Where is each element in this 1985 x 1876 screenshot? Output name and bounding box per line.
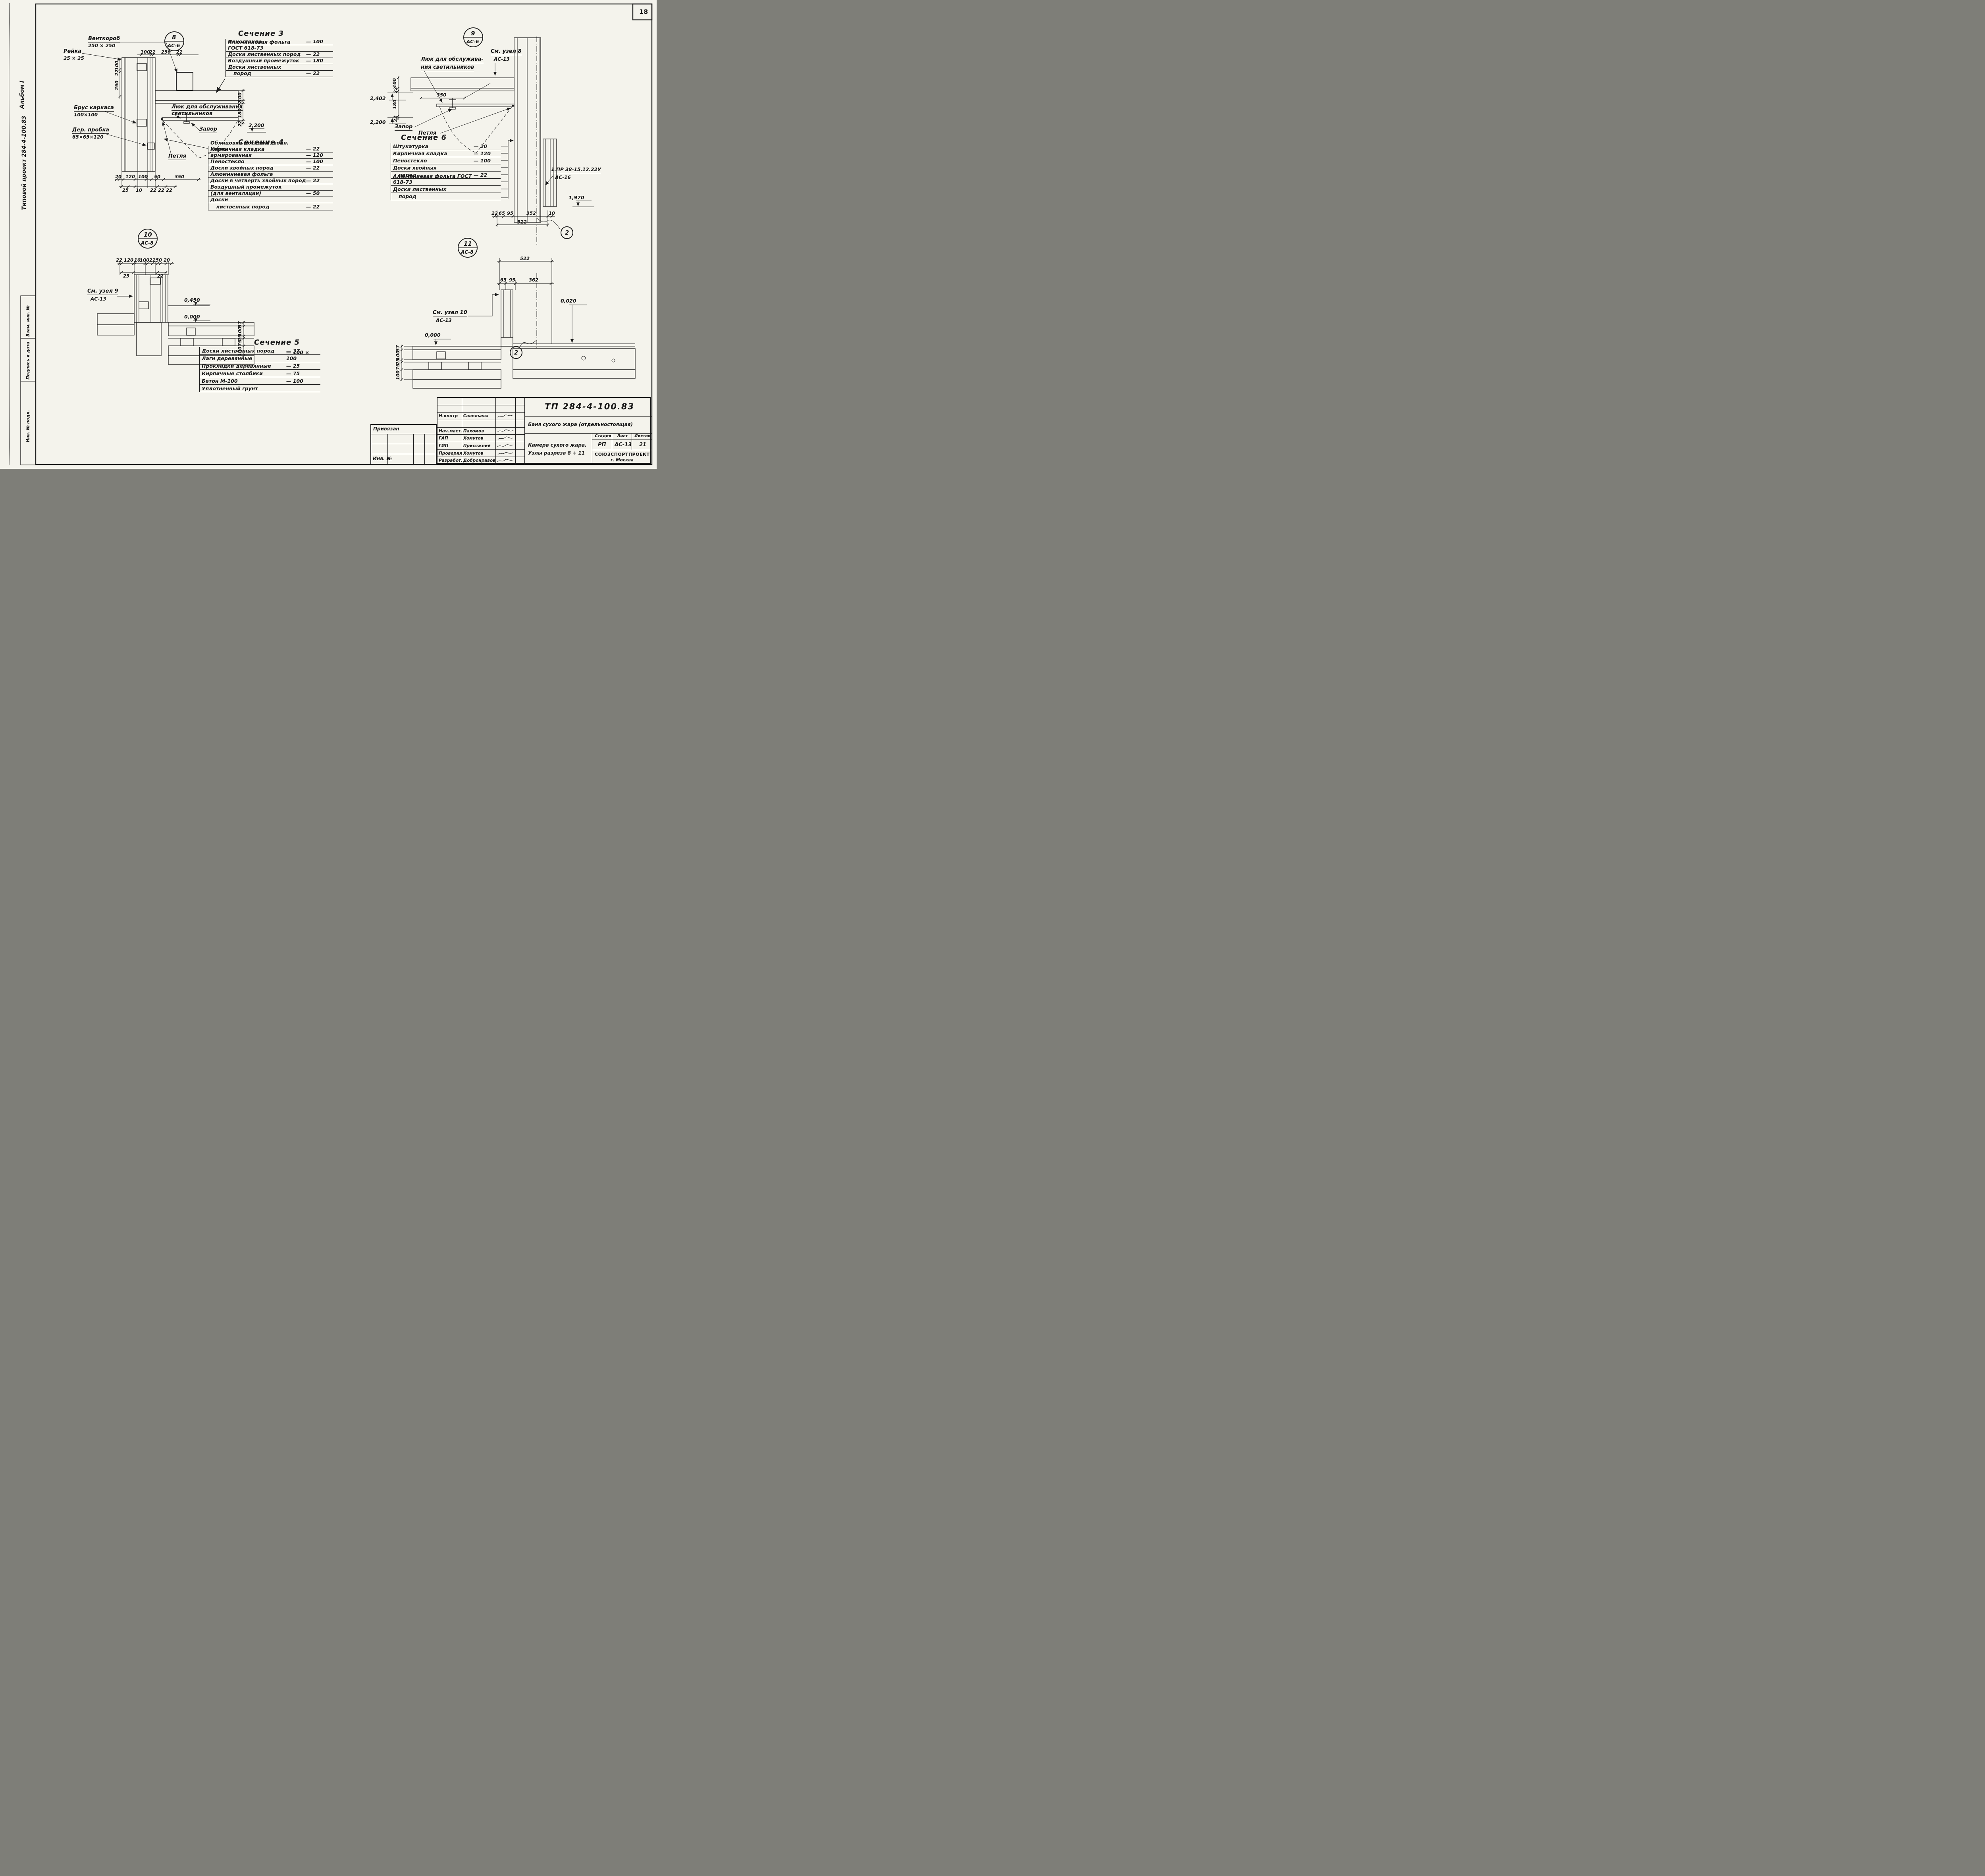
role-label: ГАП bbox=[437, 435, 462, 442]
material-name: Алюминиевая фольга ГОСТ 618-73 bbox=[228, 39, 306, 51]
table-row: Кирпичные столбики— 75 bbox=[200, 370, 320, 377]
see-node-sheet: АС-13 bbox=[436, 318, 452, 323]
material-value: — 120 bbox=[474, 150, 500, 156]
material-value: — 25 bbox=[286, 363, 320, 369]
dim: 352 bbox=[526, 210, 536, 216]
material-name: пород bbox=[393, 193, 474, 199]
dim: 250 bbox=[114, 81, 119, 90]
material-name: Доски bbox=[210, 197, 306, 202]
table-row: Бетон М-100— 100 bbox=[200, 377, 320, 385]
dim: 100 bbox=[114, 61, 119, 70]
role-name: Пахомов bbox=[462, 428, 496, 435]
elevation-mark: 0,450 bbox=[184, 297, 200, 303]
material-value: — 100 bbox=[306, 158, 332, 164]
dim: 22 bbox=[116, 257, 122, 263]
page-number: 18 bbox=[639, 8, 648, 15]
material-name: Воздушный промежуток bbox=[228, 58, 306, 64]
table-row: Доски лиственных bbox=[391, 186, 501, 193]
signature bbox=[497, 414, 514, 418]
table-row: (для вентиляции)— 50 bbox=[208, 191, 333, 197]
table-row: Доски лиственных пород— 22 bbox=[226, 52, 333, 58]
latch-label: Запор bbox=[395, 124, 412, 131]
margin-album-label: Альбом I bbox=[19, 73, 25, 109]
dim: 65 bbox=[499, 210, 505, 216]
signature bbox=[497, 458, 514, 463]
hatch-label-line2: ния светильников bbox=[421, 64, 474, 71]
see-node-sheet: АС-13 bbox=[91, 296, 106, 302]
material-name: лиственных пород bbox=[210, 204, 306, 210]
dim: 120 bbox=[125, 174, 135, 179]
table-row: Алюминиевая фольга ГОСТ 618-73 bbox=[391, 179, 501, 186]
dim: 100 bbox=[138, 174, 148, 179]
hinge-label: Петля bbox=[168, 153, 186, 160]
dim: 22 bbox=[237, 120, 243, 127]
table-row: Прокладки деревянные— 25 bbox=[200, 362, 320, 370]
title-block: Н.контрСавельева Нач.маст.Пахомов ГАПХом… bbox=[437, 397, 651, 464]
duct-size: 250 × 250 bbox=[88, 43, 116, 48]
hatch-label-line2: светильников bbox=[172, 111, 212, 117]
attached-label: Привязан bbox=[373, 426, 399, 432]
material-name: пород bbox=[228, 70, 306, 76]
hatch-label-line1: Люк для обслуживания bbox=[172, 104, 243, 111]
plug-size: 65×65×120 bbox=[72, 134, 104, 140]
object-title: Баня сухого жара (отдельностоящая) bbox=[528, 422, 633, 427]
material-name: Доски хвойных bbox=[393, 165, 474, 171]
ref-doc-label: 1.ПР 38-15.12.22У bbox=[551, 167, 601, 173]
elevation-mark: 2,402 bbox=[370, 95, 386, 101]
dim: 250 bbox=[161, 49, 171, 55]
dim: 50 bbox=[156, 257, 162, 263]
signature bbox=[497, 451, 514, 456]
signature bbox=[497, 429, 514, 434]
material-value: — 22 bbox=[306, 165, 332, 171]
dim: 180 bbox=[237, 108, 243, 118]
dim: 95 bbox=[509, 277, 515, 283]
section3-title: Сечение 3 bbox=[238, 29, 284, 38]
dim: 22 bbox=[158, 187, 164, 193]
table-row: Алюминиевая фольга ГОСТ 618-73 bbox=[226, 45, 333, 52]
table-row: Доски хвойных пород— 22 bbox=[208, 165, 333, 172]
table-row: Воздушный промежуток bbox=[208, 184, 333, 191]
elevation-mark: 2,200 bbox=[249, 122, 264, 128]
dim: 100 bbox=[141, 49, 150, 55]
signature bbox=[497, 436, 514, 441]
material-name: Прокладки деревянные bbox=[202, 363, 286, 369]
node9-bubble-sheet: АС-6 bbox=[466, 39, 479, 44]
dim: 22 bbox=[149, 257, 156, 263]
organization-city: г. Москва bbox=[611, 458, 634, 463]
material-value: — 22 bbox=[306, 70, 332, 76]
material-name: Доски в четверть хвойных пород bbox=[210, 177, 306, 183]
material-name: Уплотненный грунт bbox=[202, 386, 286, 391]
dim: 22 bbox=[393, 87, 398, 93]
dim: 22 bbox=[166, 187, 172, 193]
material-name: Пеностекло bbox=[210, 158, 306, 164]
beam-size: 100×100 bbox=[74, 112, 98, 118]
dim: 50 bbox=[154, 174, 160, 179]
material-value: — 22 bbox=[306, 177, 332, 183]
section3-table: Пеностекло— 100 Алюминиевая фольга ГОСТ … bbox=[225, 39, 333, 77]
role-name: Хомутов bbox=[462, 450, 496, 457]
elevation-mark: 0,000 bbox=[425, 332, 441, 338]
dim: 75 bbox=[395, 364, 401, 370]
section4-table: Облицовка досками хвойн. пород— 22 Кирпи… bbox=[208, 146, 333, 210]
role-name: Присяжний bbox=[462, 442, 496, 449]
role-label: Н.контр bbox=[437, 413, 462, 420]
see-node-label: См. узел 9 bbox=[87, 288, 118, 295]
table-row: Штукатурка— 20 bbox=[391, 143, 501, 150]
dim: 25 bbox=[123, 273, 129, 279]
stage-header: Стадия bbox=[595, 434, 611, 438]
hatch-label-line1: Люк для обслужива- bbox=[421, 56, 484, 63]
beam-label: Брус каркаса bbox=[74, 105, 114, 112]
dim: 100 bbox=[395, 370, 401, 380]
dim: 350 bbox=[437, 92, 446, 98]
margin-project-label: Типовой проект 284-4-100.83 bbox=[21, 111, 27, 210]
table-row: Уплотненный грунт bbox=[200, 385, 320, 392]
dim: 100 bbox=[392, 78, 397, 88]
node11-bubble-number: 11 bbox=[464, 240, 472, 247]
attachment-stamp: Привязан Инв. № bbox=[370, 424, 437, 465]
title-block-row: Разработ.Добронравова bbox=[437, 457, 524, 465]
dim: 362 bbox=[529, 277, 538, 283]
material-name: Штукатурка bbox=[393, 143, 474, 149]
title-block-row bbox=[437, 420, 524, 428]
table-row: Пеностекло— 100 bbox=[208, 159, 333, 165]
node9-bubble-number: 9 bbox=[471, 30, 475, 37]
dim: 22 bbox=[176, 49, 183, 55]
elevation-mark: 2,200 bbox=[370, 119, 386, 125]
dim: 75 bbox=[237, 340, 243, 346]
material-value: — 22 bbox=[306, 51, 332, 57]
role-name: Добронравова bbox=[462, 457, 496, 465]
axis-bubble-2: 2 bbox=[565, 229, 569, 236]
dim: 20 bbox=[115, 174, 121, 179]
dim: 22 bbox=[149, 49, 156, 55]
dim: 180 bbox=[392, 100, 397, 109]
dim: 10 bbox=[549, 210, 555, 216]
table-row: Доски в четверть хвойных пород— 22 bbox=[208, 178, 333, 184]
node8-bubble-number: 8 bbox=[172, 34, 176, 41]
see-node-label: См. узел 10 bbox=[433, 310, 467, 316]
material-name: Кирпичная кладка bbox=[393, 150, 474, 156]
material-name: Пеностекло bbox=[393, 158, 474, 164]
dim: 22 bbox=[114, 69, 119, 76]
title-block-row bbox=[437, 398, 524, 405]
sheets-count-value: 21 bbox=[639, 442, 646, 448]
section6-table: Штукатурка— 20 Кирпичная кладка— 120 Пен… bbox=[391, 143, 501, 200]
material-value: — 75 bbox=[286, 370, 320, 376]
dim: 25 bbox=[122, 187, 129, 193]
document-number: ТП 284-4-100.83 bbox=[545, 402, 634, 411]
material-value: — 22 bbox=[474, 172, 500, 178]
dim: 22 bbox=[237, 100, 243, 107]
axis-bubble-2: 2 bbox=[514, 349, 518, 356]
dim: 95 bbox=[507, 210, 513, 216]
lath-size: 25 × 25 bbox=[64, 56, 84, 61]
table-row: Кирпичная кладка армированная— 120 bbox=[208, 152, 333, 159]
material-value: — 50 bbox=[306, 190, 332, 196]
dim: 100 bbox=[140, 257, 149, 263]
material-value: — 100 bbox=[474, 158, 500, 164]
see-node-sheet: АС-13 bbox=[494, 56, 510, 62]
material-name: Доски хвойных пород bbox=[210, 165, 306, 171]
elevation-mark: 0,000 bbox=[184, 314, 200, 320]
duct-label: Венткороб bbox=[88, 36, 120, 42]
lath-label: Рейка bbox=[64, 48, 81, 55]
title-block-row bbox=[437, 405, 524, 413]
table-row: Лаги деревянные— 100 × 100 bbox=[200, 355, 320, 362]
table-row: пород bbox=[391, 193, 501, 200]
table-row: Доски bbox=[208, 197, 333, 203]
ref-doc-sheet: АС-16 bbox=[555, 175, 571, 180]
table-row: пород— 22 bbox=[226, 71, 333, 77]
role-label: Разработ. bbox=[437, 457, 462, 465]
table-row: Пеностекло— 100 bbox=[391, 157, 501, 164]
plug-label: Дер. пробка bbox=[72, 127, 109, 134]
title-block-row: Н.контрСавельева bbox=[437, 413, 524, 420]
dim: 22 bbox=[150, 187, 156, 193]
dim: 20 bbox=[164, 257, 170, 263]
material-name: Бетон М-100 bbox=[202, 378, 286, 384]
dim: 22 bbox=[491, 210, 498, 216]
title-block-row: ГАПХомутов bbox=[437, 435, 524, 442]
sheet-header: Лист bbox=[617, 434, 628, 438]
table-row: Воздушный промежуток— 180 bbox=[226, 58, 333, 64]
drawing-sheet: 18 Альбом I Типовой проект 284-4-100.83 … bbox=[0, 0, 657, 469]
dim: 22 bbox=[393, 116, 398, 122]
title-block-row: ПроверилХомутов bbox=[437, 450, 524, 457]
see-node-label: См. узел 8 bbox=[491, 48, 522, 55]
material-name: Алюминиевая фольга ГОСТ 618-73 bbox=[393, 173, 474, 185]
material-name: Доски лиственных пород bbox=[228, 51, 306, 57]
material-name: Воздушный промежуток bbox=[210, 184, 306, 190]
table-row: лиственных пород— 22 bbox=[208, 203, 333, 210]
section5-title: Сечение 5 bbox=[254, 338, 300, 347]
table-row: Кирпичная кладка— 120 bbox=[391, 150, 501, 157]
node11-bubble-sheet: АС-8 bbox=[461, 249, 473, 255]
organization-name: СОЮЗСПОРТПРОЕКТ bbox=[595, 452, 649, 457]
material-name: Кирпичная кладка армированная bbox=[210, 146, 306, 158]
table-row: Доски хвойных bbox=[391, 164, 501, 172]
table-row: Доски лиственных bbox=[226, 64, 333, 71]
node8-bubble-sheet: АС-6 bbox=[168, 43, 180, 48]
material-name: Алюминиевая фольга bbox=[210, 171, 306, 177]
table-row: Алюминиевая фольга bbox=[208, 172, 333, 178]
dim: 65 bbox=[500, 277, 507, 283]
section5-table: Доски лиственных пород— 37 Лаги деревянн… bbox=[199, 347, 320, 392]
stamp-cell-label: Подпись и дата bbox=[26, 340, 31, 380]
material-name: (для вентиляции) bbox=[210, 190, 306, 196]
material-value: — 100 × 100 bbox=[286, 349, 320, 361]
material-value: — 22 bbox=[306, 146, 332, 152]
title-block-row: Нач.маст.Пахомов bbox=[437, 428, 524, 435]
material-value: — 20 bbox=[474, 143, 500, 149]
elevation-mark: 1,970 bbox=[569, 195, 584, 201]
node10-linework bbox=[97, 229, 254, 364]
role-label: Проверил bbox=[437, 450, 462, 457]
inventory-number-label: Инв. № bbox=[373, 456, 392, 461]
material-name: Доски лиственных пород bbox=[202, 348, 286, 354]
role-label: Нач.маст. bbox=[437, 428, 462, 435]
material-value: — 120 bbox=[306, 152, 332, 158]
material-value: — 180 bbox=[306, 58, 332, 64]
stage-value: РП bbox=[598, 442, 606, 448]
dim: 10 bbox=[136, 187, 142, 193]
stamp-cell-label: Инв. № подл. bbox=[26, 403, 31, 442]
drawing-title-line2: Узлы разреза 8 ÷ 11 bbox=[528, 450, 585, 456]
material-name: Доски лиственных bbox=[228, 64, 306, 70]
dim: 22 bbox=[157, 273, 164, 279]
material-value: — 22 bbox=[306, 204, 332, 210]
material-name: Доски лиственных bbox=[393, 186, 474, 192]
latch-label: Запор bbox=[199, 126, 217, 133]
role-name: Хомутов bbox=[462, 435, 496, 442]
dim: 120 bbox=[124, 257, 133, 263]
dim: 522 bbox=[520, 256, 530, 261]
material-value: — 100 bbox=[306, 39, 332, 44]
title-block-row: ГИППрисяжний bbox=[437, 442, 524, 450]
node10-bubble-sheet: АС-8 bbox=[141, 240, 153, 246]
material-value: — 100 bbox=[286, 378, 320, 384]
role-label: ГИП bbox=[437, 442, 462, 449]
sheet-value: АС-13 bbox=[615, 442, 632, 448]
sheets-header: Листов bbox=[634, 434, 650, 438]
material-name: Лаги деревянные bbox=[202, 355, 286, 361]
dim: 350 bbox=[175, 174, 184, 179]
stamp-cell-label: Взам. инв. № bbox=[26, 297, 31, 337]
dim: 522 bbox=[517, 219, 527, 225]
section6-title: Сечение 6 bbox=[401, 133, 447, 142]
drawing-title-line1: Камера сухого жара. bbox=[528, 442, 587, 448]
elevation-mark: 0,020 bbox=[561, 298, 576, 304]
material-name: Кирпичные столбики bbox=[202, 370, 286, 376]
node10-bubble-number: 10 bbox=[144, 231, 152, 238]
signature bbox=[497, 443, 514, 448]
role-name: Савельева bbox=[462, 413, 496, 420]
